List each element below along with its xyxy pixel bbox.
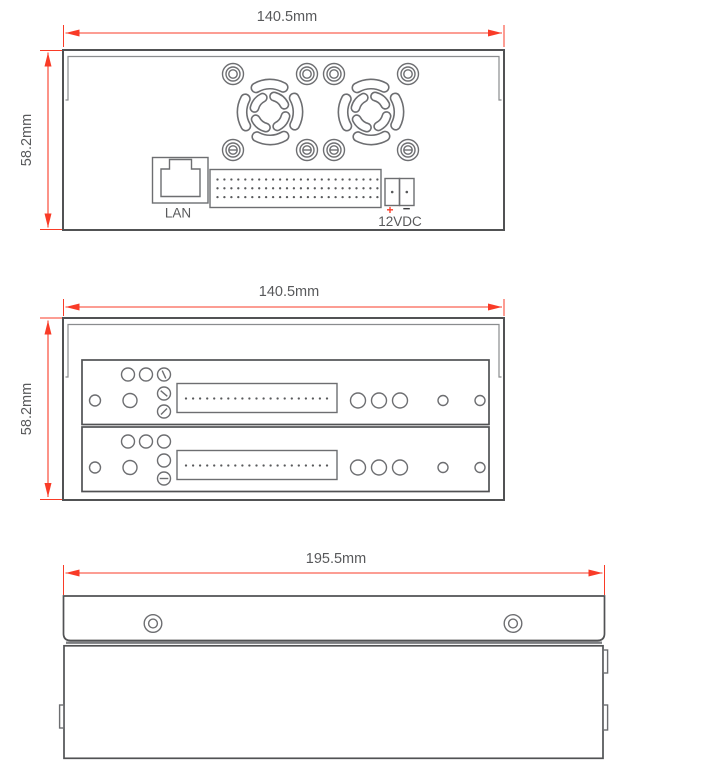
tray-hole [140,435,153,448]
tray-hole [140,368,153,381]
rear-width-dimension: 140.5mm [64,9,505,47]
dimension-drawing-page: 140.5mm 58.2mm LAN + − 12VDC [0,0,718,781]
tray-hole [158,454,171,467]
tray-hole [123,461,137,475]
tray-hole [122,435,135,448]
tray-hole [90,395,101,406]
screw-icon [324,140,345,161]
enclosure-technical-drawing: 140.5mm 58.2mm LAN + − 12VDC [0,0,718,781]
tray-hole [122,368,135,381]
top-width-dimension: 195.5mm [64,551,605,595]
front-view: 140.5mm 58.2mm [19,284,504,500]
front-height-label: 58.2mm [19,383,35,435]
front-width-label: 140.5mm [259,284,319,300]
tray-hole [372,393,387,408]
tray-hole [351,460,366,475]
top-body-outline [64,646,603,759]
lan-port-label: LAN [165,206,191,221]
front-height-dimension: 58.2mm [19,318,68,500]
top-cover-strip [64,596,605,641]
rear-height-dimension: 58.2mm [19,51,68,230]
side-tab-left [60,705,65,728]
tray-hole [158,435,171,448]
tray-hole [438,463,448,473]
rear-view: 140.5mm 58.2mm LAN + − 12VDC [19,9,504,230]
tray-hole [438,396,448,406]
tray-hole [351,393,366,408]
top-width-label: 195.5mm [306,551,366,567]
tray-hole [475,463,485,473]
top-view: 195.5mm [60,551,608,758]
rear-width-label: 140.5mm [257,9,317,25]
tray-hole [393,460,408,475]
tray-hole [475,396,485,406]
tray-hole [123,394,137,408]
tray-hole [90,462,101,473]
screw-icon [297,140,318,161]
tray-hole [372,460,387,475]
front-width-dimension: 140.5mm [64,284,505,316]
power-label: 12VDC [378,214,422,229]
screw-icon [398,140,419,161]
screw-icon [223,140,244,161]
rear-height-label: 58.2mm [19,114,35,166]
tray-hole [393,393,408,408]
